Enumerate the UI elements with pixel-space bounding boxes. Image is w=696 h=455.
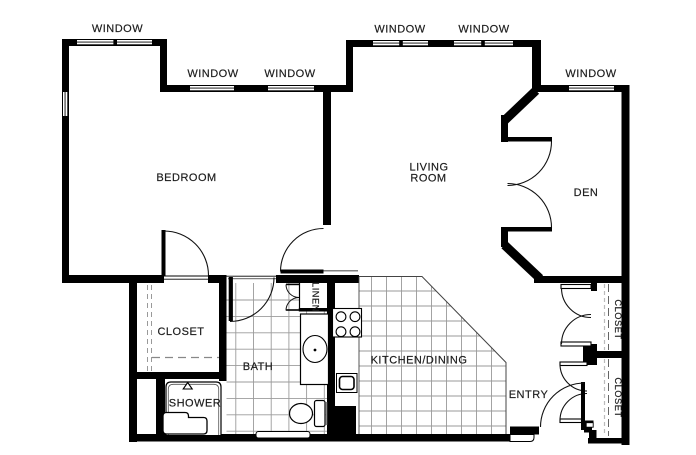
- svg-text:WINDOW: WINDOW: [264, 68, 315, 80]
- svg-text:LINEN: LINEN: [310, 282, 320, 312]
- svg-text:WINDOW: WINDOW: [565, 68, 616, 80]
- svg-text:DEN: DEN: [574, 187, 599, 199]
- svg-text:WINDOW: WINDOW: [187, 68, 238, 80]
- svg-text:ENTRY: ENTRY: [509, 389, 549, 401]
- svg-text:BEDROOM: BEDROOM: [156, 172, 216, 184]
- svg-text:KITCHEN/DINING: KITCHEN/DINING: [371, 355, 468, 367]
- svg-text:BATH: BATH: [243, 361, 274, 373]
- svg-text:CLOSET: CLOSET: [613, 299, 623, 339]
- svg-text:CLOSET: CLOSET: [157, 326, 204, 338]
- svg-text:WINDOW: WINDOW: [92, 23, 143, 35]
- svg-text:ROOM: ROOM: [410, 173, 446, 185]
- svg-text:WINDOW: WINDOW: [458, 24, 509, 36]
- svg-text:SHOWER: SHOWER: [169, 398, 222, 410]
- svg-text:CLOSET: CLOSET: [613, 377, 623, 417]
- svg-text:WINDOW: WINDOW: [374, 24, 425, 36]
